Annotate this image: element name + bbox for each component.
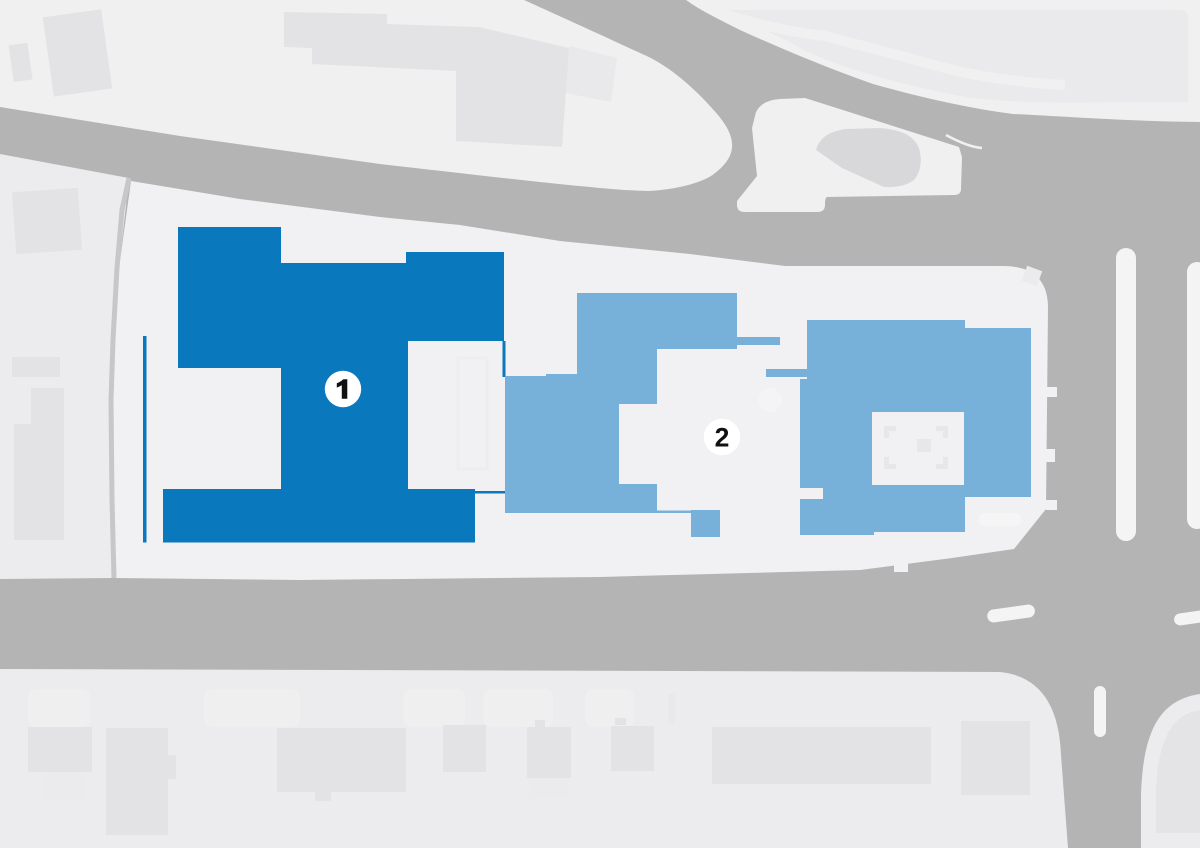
svg-text:2: 2 [715, 423, 730, 453]
